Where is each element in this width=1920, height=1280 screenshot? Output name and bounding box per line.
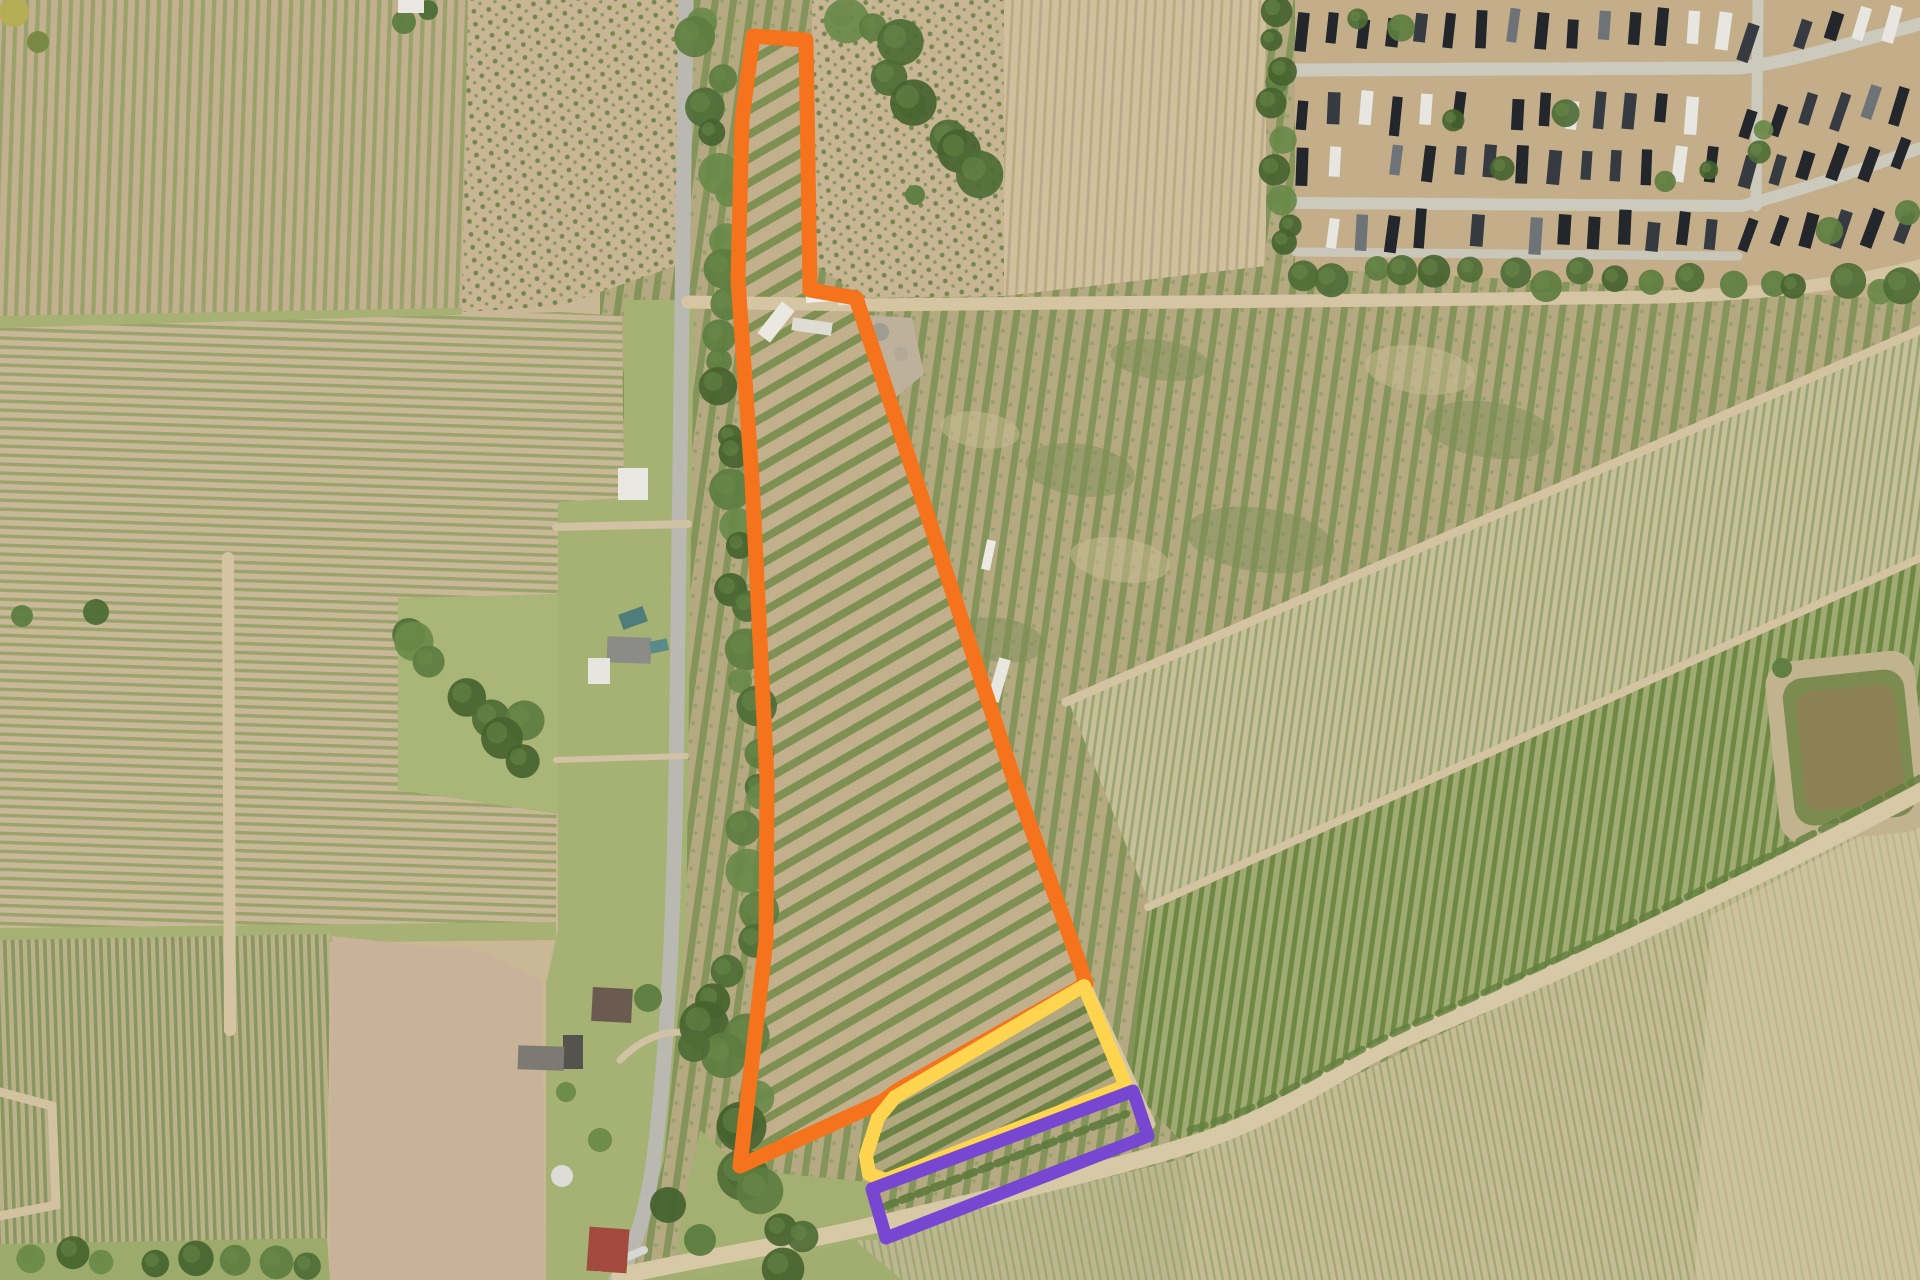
- tree-highlight: [730, 634, 751, 655]
- tree-highlight: [1350, 11, 1360, 21]
- tree-highlight: [791, 1225, 807, 1241]
- tree-highlight: [943, 135, 965, 157]
- tree-highlight: [1723, 274, 1737, 288]
- tree-blob: [684, 1224, 716, 1256]
- tree-highlight: [1368, 259, 1380, 271]
- tree-highlight: [714, 292, 730, 308]
- tree-highlight: [1835, 267, 1853, 285]
- tree-highlight: [1282, 217, 1293, 228]
- round-white-tank: [551, 1165, 573, 1187]
- field-path-vertical: [228, 558, 230, 1030]
- tree-highlight: [1445, 112, 1456, 123]
- tree-highlight: [1702, 163, 1711, 172]
- tree-highlight: [862, 17, 876, 31]
- gray-roof-house: [607, 636, 652, 664]
- driveway-1: [556, 524, 688, 527]
- aerial-map: [0, 0, 1920, 1280]
- tree-blob: [588, 1128, 612, 1152]
- tree-blob: [1772, 658, 1792, 678]
- tree-highlight: [417, 650, 433, 666]
- trailer-home: [1475, 10, 1488, 49]
- tree-highlight: [1605, 269, 1618, 282]
- tree-highlight: [715, 959, 731, 975]
- tree-highlight: [1272, 61, 1286, 75]
- tree-highlight: [1764, 274, 1777, 287]
- tree-highlight: [1819, 220, 1833, 234]
- tree-highlight: [962, 157, 986, 181]
- tree-highlight: [1270, 189, 1285, 204]
- tree-highlight: [724, 512, 742, 530]
- tree-highlight: [704, 372, 723, 391]
- park-road-h2: [1296, 203, 1742, 206]
- tree-highlight: [707, 324, 724, 341]
- field-plowed-pale: [330, 936, 545, 1280]
- tree-highlight: [679, 21, 700, 42]
- tree-highlight: [1260, 91, 1275, 106]
- trailer-home: [1587, 216, 1601, 249]
- tree-highlight: [1273, 130, 1287, 144]
- trailer-home: [1511, 99, 1525, 130]
- tree-blob: [27, 31, 49, 53]
- tree-highlight: [729, 535, 743, 549]
- tree-highlight: [1756, 123, 1766, 133]
- tree-highlight: [1460, 260, 1473, 273]
- tree-highlight: [1391, 259, 1406, 274]
- tree-highlight: [731, 672, 743, 684]
- trailer-home: [1295, 147, 1308, 186]
- trailer-home: [1566, 19, 1579, 49]
- tree-highlight: [736, 594, 752, 610]
- tree-blob: [11, 605, 33, 627]
- trailer-home: [1609, 150, 1621, 182]
- tree-highlight: [707, 1038, 730, 1061]
- tree-highlight: [875, 64, 893, 82]
- tree-highlight: [399, 626, 419, 646]
- tree-highlight: [690, 92, 710, 112]
- tree-highlight: [713, 228, 731, 246]
- brown-roof-house: [591, 987, 633, 1023]
- satellite-image: [0, 0, 1920, 1280]
- field-top-center-pale: [1004, 0, 1266, 296]
- tree-highlight: [264, 1250, 281, 1267]
- tree-highlight: [896, 85, 919, 108]
- gravel-mound: [894, 347, 908, 361]
- trailer-home: [1598, 10, 1611, 40]
- tree-highlight: [1679, 267, 1694, 282]
- tree-highlight: [1493, 159, 1505, 171]
- trailer-home: [1355, 214, 1369, 251]
- tree-highlight: [297, 1256, 311, 1270]
- tree-blob: [905, 185, 925, 205]
- tree-blob: [392, 10, 416, 34]
- tree-blob: [678, 1030, 710, 1062]
- trailer-home: [1515, 145, 1529, 184]
- field-top-left-vrows: [0, 0, 468, 320]
- driveway-4: [556, 756, 686, 760]
- tree-highlight: [1534, 274, 1550, 290]
- trailer-home: [1419, 93, 1433, 125]
- tree-highlight: [1421, 259, 1437, 275]
- tree-highlight: [718, 577, 735, 594]
- tree-blob: [83, 599, 109, 625]
- trailer-home: [1687, 10, 1701, 44]
- tree-highlight: [719, 183, 732, 196]
- tree-highlight: [1898, 203, 1911, 216]
- tree-highlight: [730, 815, 748, 833]
- trailer-home: [1539, 92, 1552, 126]
- tree-highlight: [452, 683, 471, 702]
- tree-highlight: [714, 474, 735, 495]
- tree-highlight: [708, 254, 728, 274]
- trailer-home: [1528, 217, 1543, 255]
- white-barn: [618, 468, 648, 500]
- tree-highlight: [1888, 272, 1907, 291]
- tree-highlight: [686, 1007, 711, 1032]
- tree-highlight: [61, 1240, 78, 1257]
- tree-highlight: [767, 1253, 788, 1274]
- tree-highlight: [1642, 273, 1655, 286]
- tree-highlight: [1569, 261, 1583, 275]
- tree-highlight: [742, 1173, 765, 1196]
- tree-highlight: [1263, 158, 1279, 174]
- tree-highlight: [1275, 233, 1288, 246]
- tree-highlight: [183, 1245, 201, 1263]
- tree-highlight: [1263, 32, 1274, 43]
- trailer-home: [1470, 214, 1485, 247]
- tree-blob: [556, 1082, 576, 1102]
- tree-highlight: [731, 854, 753, 876]
- tree-highlight: [224, 1249, 239, 1264]
- red-roof-house: [587, 1227, 630, 1274]
- tree-highlight: [703, 158, 724, 179]
- tree-highlight: [92, 1253, 104, 1265]
- trailer-home: [1557, 214, 1571, 245]
- tree-highlight: [1870, 282, 1883, 295]
- gray-barn: [518, 1045, 565, 1071]
- tree-highlight: [723, 440, 739, 456]
- trailer-home: [1618, 209, 1632, 244]
- tree-blob: [634, 984, 662, 1012]
- tree-highlight: [145, 1253, 159, 1267]
- tree-highlight: [510, 748, 527, 765]
- tree-highlight: [1292, 264, 1307, 279]
- white-shed: [588, 658, 610, 684]
- tree-blob: [650, 1187, 686, 1223]
- tree-highlight: [1391, 18, 1405, 32]
- trailer-home: [1641, 149, 1653, 185]
- white-building-top-left: [398, 0, 424, 13]
- tree-highlight: [883, 25, 906, 48]
- tree-highlight: [1504, 261, 1519, 276]
- tree-highlight: [1319, 267, 1336, 284]
- park-road-b1: [1296, 252, 1738, 256]
- tree-highlight: [1265, 0, 1281, 15]
- tree-highlight: [712, 68, 726, 82]
- trailer-home: [1580, 151, 1592, 180]
- tree-highlight: [486, 722, 507, 743]
- tree-highlight: [1750, 143, 1762, 155]
- tree-highlight: [710, 352, 723, 365]
- tree-highlight: [702, 122, 715, 135]
- tree-highlight: [743, 928, 760, 945]
- tree-highlight: [768, 1217, 785, 1234]
- tree-highlight: [1555, 103, 1569, 117]
- trailer-home: [1329, 146, 1342, 177]
- tree-highlight: [20, 1248, 34, 1262]
- dark-shed: [563, 1035, 583, 1069]
- tree-highlight: [1784, 277, 1797, 290]
- tree-highlight: [1657, 173, 1668, 184]
- field-left-dotted: [462, 0, 692, 312]
- trailer-home: [1327, 92, 1341, 125]
- tree-highlight: [830, 4, 853, 27]
